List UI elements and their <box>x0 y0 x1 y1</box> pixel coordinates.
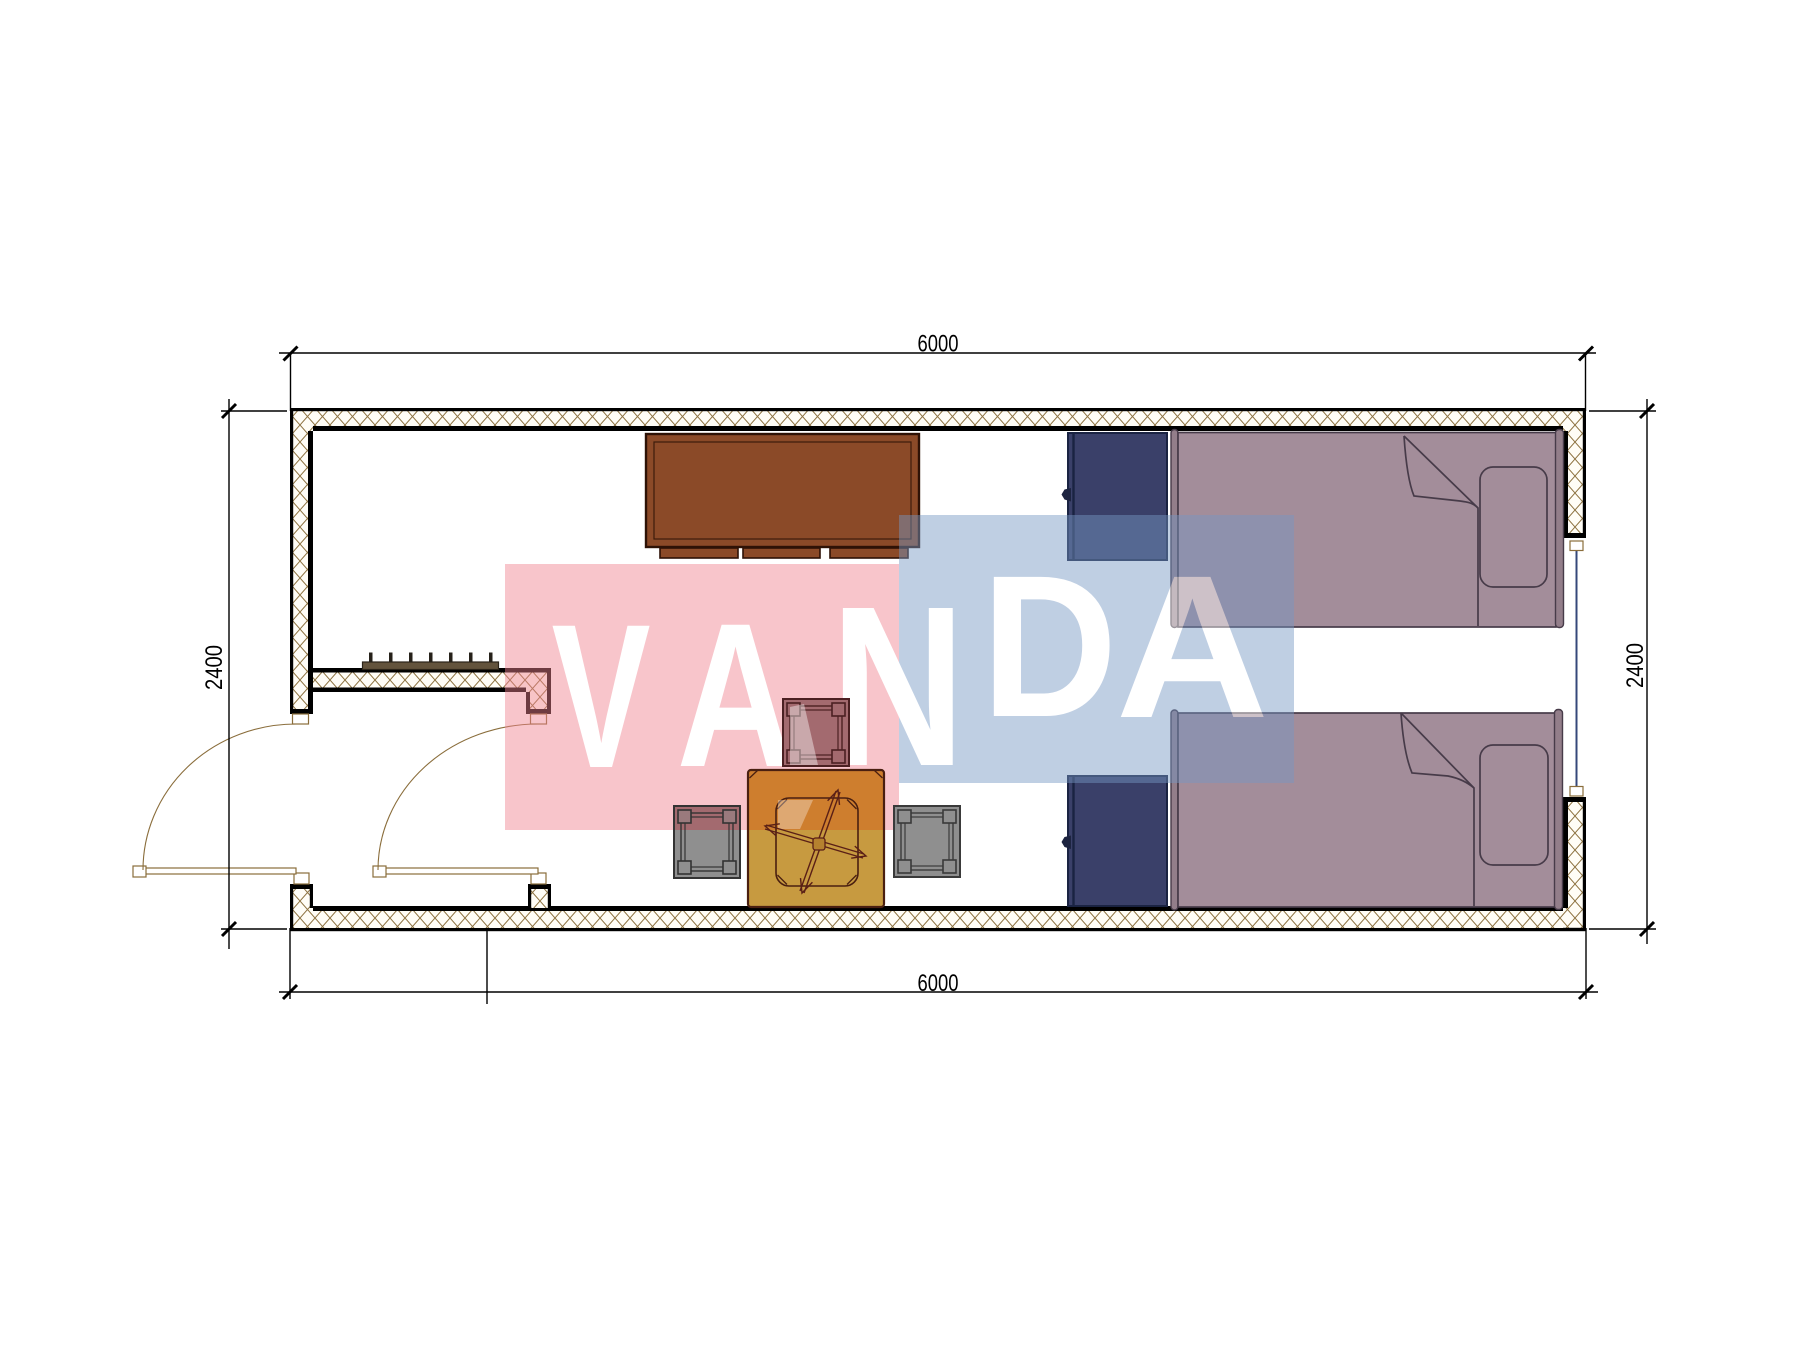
svg-text:2400: 2400 <box>1622 643 1649 688</box>
svg-text:6000: 6000 <box>918 970 959 997</box>
svg-text:V: V <box>552 581 651 810</box>
svg-text:6000: 6000 <box>918 331 959 358</box>
svg-text:A: A <box>1116 533 1270 761</box>
svg-text:D: D <box>981 534 1117 759</box>
svg-text:2400: 2400 <box>201 645 228 690</box>
